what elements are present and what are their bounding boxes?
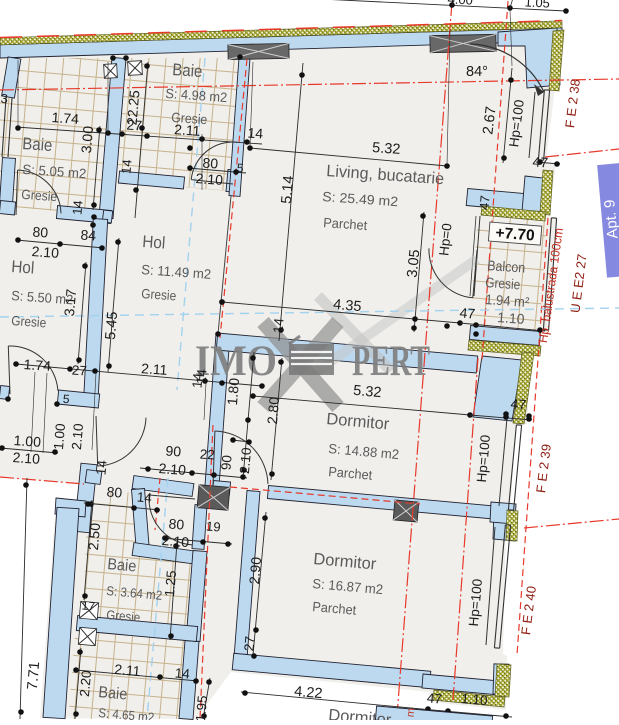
svg-text:2.10: 2.10 [158,460,187,478]
svg-text:80: 80 [168,515,185,532]
svg-text:1.25: 1.25 [162,570,179,597]
svg-text:2.10: 2.10 [161,532,190,550]
svg-text:1.00: 1.00 [51,423,68,450]
svg-text:80: 80 [202,154,219,171]
svg-text:Gresie: Gresie [11,313,47,330]
svg-text:1.10: 1.10 [497,309,526,327]
svg-text:5.32: 5.32 [372,140,401,158]
svg-text:2.90: 2.90 [246,556,264,585]
svg-text:m: m [405,707,418,718]
svg-text:1.05: 1.05 [524,0,550,11]
svg-text:2.67: 2.67 [480,106,499,136]
svg-text:14: 14 [174,665,191,681]
svg-text:47: 47 [510,395,527,412]
svg-text:80: 80 [32,223,49,240]
svg-text:84°: 84° [466,64,488,80]
svg-text:2.10: 2.10 [12,449,41,467]
svg-text:2.11: 2.11 [174,121,201,139]
svg-text:1.74: 1.74 [51,109,80,127]
svg-text:PERT: PERT [352,338,430,385]
svg-text:Hol: Hol [142,232,166,253]
svg-text:4.35: 4.35 [333,297,363,315]
svg-text:84: 84 [80,226,97,243]
svg-text:1.00: 1.00 [13,432,42,450]
svg-text:1.74: 1.74 [23,356,52,374]
svg-text:14: 14 [136,489,153,505]
svg-text:4.22: 4.22 [294,684,324,702]
svg-text:3.00: 3.00 [78,125,96,154]
svg-text:47: 47 [476,195,492,211]
svg-text:Baie: Baie [98,684,128,703]
svg-text:+7.70: +7.70 [495,225,535,245]
svg-text:90: 90 [218,454,234,470]
svg-text:47: 47 [426,690,442,706]
svg-text:14: 14 [93,459,109,476]
svg-text:1.10: 1.10 [461,691,488,708]
svg-text:3.05: 3.05 [405,249,424,279]
svg-text:1.94 m²: 1.94 m² [485,291,530,310]
svg-text:27: 27 [126,116,143,133]
svg-text:Hol: Hol [11,257,35,278]
svg-text:2.10: 2.10 [31,243,60,261]
svg-text:1.95: 1.95 [193,695,210,720]
svg-text:2.10: 2.10 [195,170,224,188]
svg-text:14: 14 [193,368,209,385]
svg-text:Balcon: Balcon [487,257,526,276]
svg-text:2.10: 2.10 [237,447,254,474]
svg-text:14: 14 [270,317,286,334]
svg-text:Parchet: Parchet [323,215,368,233]
svg-text:Gresie: Gresie [106,607,141,625]
svg-text:5.45: 5.45 [103,311,121,341]
svg-text:80: 80 [106,483,123,500]
svg-text:5.14: 5.14 [279,175,297,205]
svg-text:5: 5 [236,161,244,175]
svg-text:47: 47 [459,304,476,321]
svg-text:19: 19 [206,518,222,534]
svg-text:2.20: 2.20 [77,670,94,697]
svg-text:7.71: 7.71 [25,661,43,691]
svg-text:22: 22 [199,447,215,463]
svg-text:2.50: 2.50 [85,522,103,551]
svg-text:1.80: 1.80 [224,377,242,406]
svg-text:2.11: 2.11 [141,360,168,378]
svg-text:3.17: 3.17 [61,288,79,317]
svg-text:5.32: 5.32 [353,383,383,401]
svg-text:14: 14 [69,200,85,216]
svg-text:17: 17 [81,598,96,613]
svg-text:Apt. 9: Apt. 9 [601,199,619,240]
svg-text:3: 3 [0,91,8,106]
svg-text:4.00: 4.00 [447,0,473,8]
svg-text:90: 90 [165,442,182,459]
svg-text:2.11: 2.11 [114,661,142,679]
svg-text:2.80: 2.80 [264,396,282,425]
svg-text:Baie: Baie [107,556,137,575]
svg-text:2.10: 2.10 [69,423,86,450]
svg-text:14: 14 [247,124,264,141]
svg-text:27: 27 [241,635,257,651]
svg-text:Gresie: Gresie [21,187,58,204]
svg-text:27: 27 [71,363,87,379]
svg-text:Gresie: Gresie [141,286,177,303]
svg-text:Gresie: Gresie [485,274,521,292]
svg-text:14: 14 [118,159,134,175]
svg-text:5: 5 [62,392,70,406]
svg-text:Baie: Baie [172,60,203,81]
svg-text:47: 47 [532,153,549,170]
svg-text:Baie: Baie [22,134,53,155]
